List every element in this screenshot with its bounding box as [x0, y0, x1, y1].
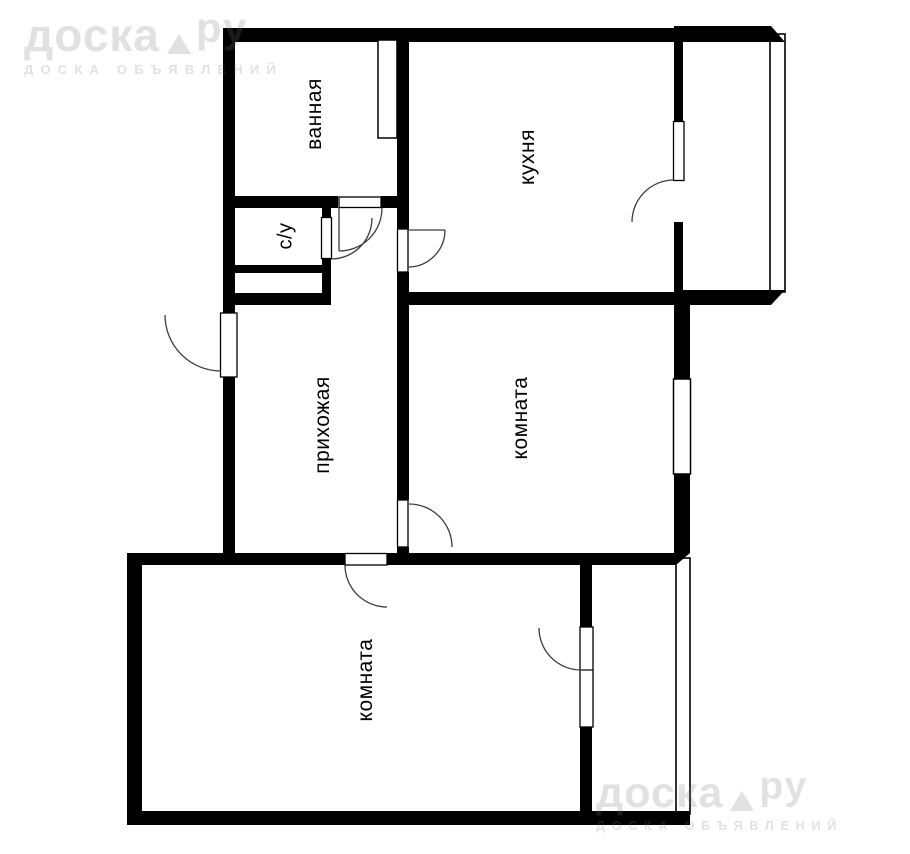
room-label-kitchen: кухня [516, 129, 540, 185]
room-label-bathroom: ванная [303, 78, 327, 150]
entrance-door-leaf [221, 313, 238, 377]
door-openings [221, 122, 685, 728]
bottom-room-door-leaf [345, 554, 387, 566]
kitchen-door-leaf [398, 229, 409, 272]
bathroom-door-leaf [339, 197, 381, 208]
floorplan-canvas: ванная с/у кухня прихожая комната комнат… [0, 0, 910, 854]
room-label-room-middle: комната [509, 377, 533, 460]
floorplan-drawing [0, 0, 910, 854]
balcony-top-rail [770, 34, 785, 292]
window-middle-room [674, 379, 691, 474]
bottom-balcony-door-leaf [580, 627, 593, 727]
room-label-room-bottom: комната [354, 639, 378, 722]
kitchen-balcony-door-leaf [674, 122, 685, 181]
room-label-toilet: с/у [275, 222, 298, 249]
vent-duct [378, 40, 397, 138]
balcony-bottom-rail [676, 558, 690, 814]
middle-room-door-leaf [398, 500, 409, 547]
door-swing-arcs [165, 180, 674, 670]
room-label-hallway: прихожая [311, 376, 335, 474]
toilet-door-leaf [322, 218, 332, 259]
